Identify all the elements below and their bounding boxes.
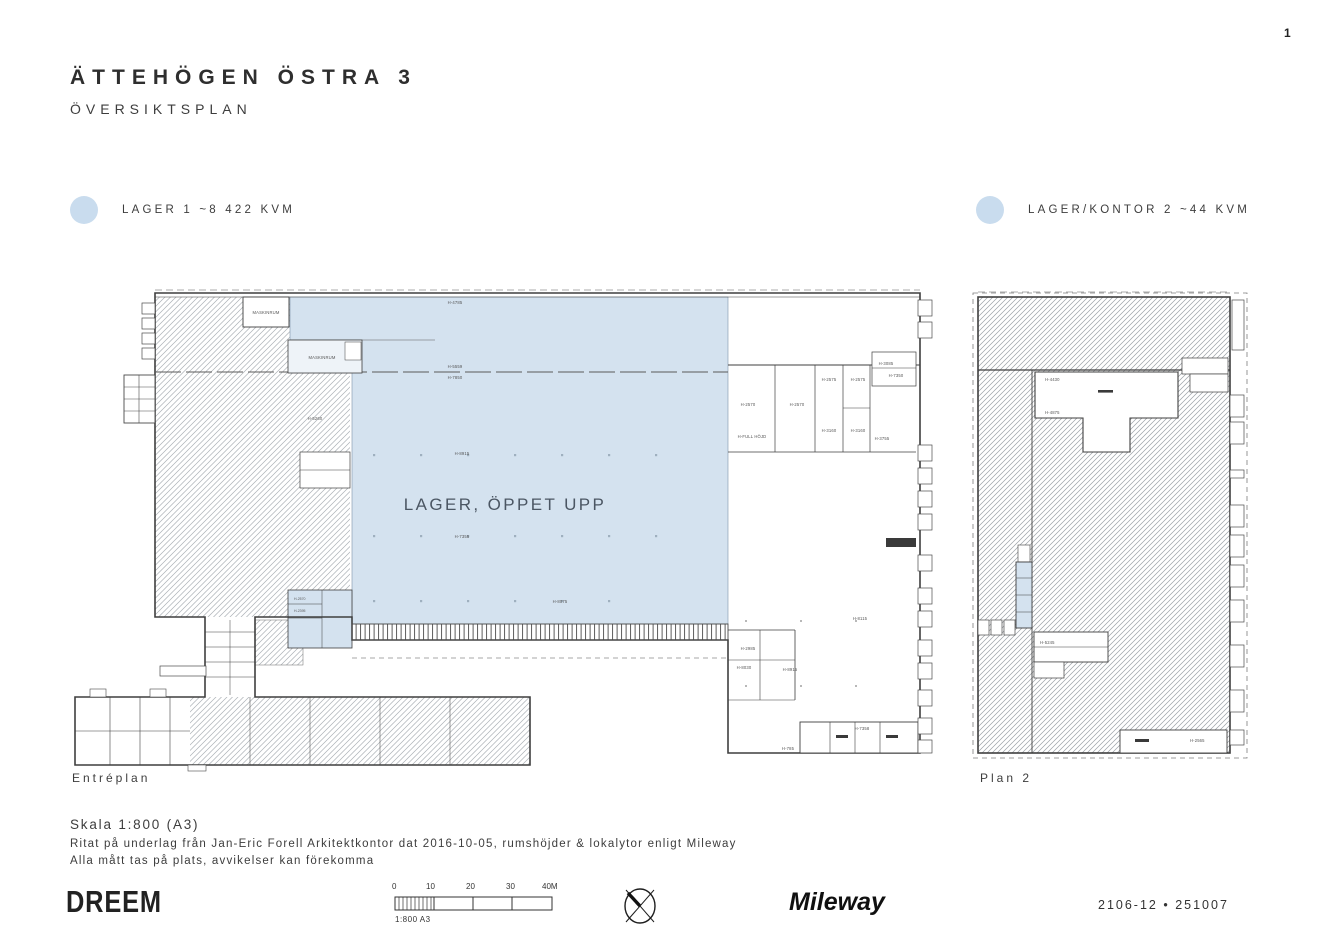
height-label: H-8030	[737, 665, 752, 670]
height-label: H-3160	[851, 428, 866, 433]
mileway-logo: Mileway	[789, 888, 885, 917]
height-label: H-2575	[851, 377, 866, 382]
height-label: H-2575	[822, 377, 837, 382]
height-label: H-7358	[855, 726, 870, 731]
scale-note: Skala 1:800 (A3)	[70, 817, 199, 832]
scalebar-tick: 20	[466, 882, 475, 891]
document-number: 2106-12 • 251007	[1098, 898, 1229, 912]
height-label: H-4785	[448, 300, 463, 305]
room-label: H-2395	[294, 609, 306, 613]
drawing-note-2: Alla mått tas på plats, avvikelser kan f…	[70, 855, 374, 867]
drawing-note-1: Ritat på underlag från Jan-Eric Forell A…	[70, 838, 737, 850]
height-label: H-8075	[553, 599, 568, 604]
height-label: H-2985	[741, 646, 756, 651]
height-label: H-FULL HÖJD	[738, 434, 767, 439]
height-label: H-5559	[448, 364, 463, 369]
height-label: H-3755	[875, 436, 890, 441]
height-label: H-2570	[741, 402, 756, 407]
scalebar-tick: 30	[506, 882, 515, 891]
floorplan-drawing: H-2570 H-2395 MASKINRUM MASKINRUM H-5260	[0, 0, 1330, 940]
compass-icon	[625, 889, 655, 923]
open-area-label: LAGER, ÖPPET UPP	[404, 495, 606, 514]
entreplan-drawing: H-2570 H-2395 MASKINRUM MASKINRUM H-5260	[75, 290, 932, 771]
dreem-logo: DREEM	[66, 884, 162, 920]
height-label: H-8915	[455, 451, 470, 456]
scale-bar: 0 10 20 30 40M 1:800 A3	[392, 882, 558, 924]
room-label-maskinrum1: MASKINRUM	[253, 310, 280, 315]
entreplan-caption: Entréplan	[72, 771, 150, 785]
height-label: H-5245	[1040, 640, 1055, 645]
loading-docks	[1230, 395, 1244, 745]
page: 1 ÄTTEHÖGEN ÖSTRA 3 ÖVERSIKTSPLAN LAGER …	[0, 0, 1330, 940]
height-label: H-7350	[889, 373, 904, 378]
height-label: H-4430	[1045, 377, 1060, 382]
scalebar-caption: 1:800 A3	[395, 915, 431, 924]
height-label: H-3160	[822, 428, 837, 433]
scalebar-tick: 40M	[542, 882, 558, 891]
height-label: H-4875	[1045, 410, 1060, 415]
height-label: H-2565	[1190, 738, 1205, 743]
room-label: H-2570	[294, 597, 306, 601]
height-label: H-7850	[448, 375, 463, 380]
room-label-maskinrum2: MASKINRUM	[309, 355, 336, 360]
scalebar-tick: 10	[426, 882, 435, 891]
scalebar-tick: 0	[392, 882, 397, 891]
plan2-caption: Plan 2	[980, 771, 1032, 785]
plan2-drawing: H-4430 H-4875	[973, 292, 1247, 758]
height-label: H-785	[782, 746, 795, 751]
height-label: H-7355	[455, 534, 470, 539]
height-label: H-2570	[790, 402, 805, 407]
room-label: H-5260	[308, 416, 323, 421]
height-label: H-8915	[783, 667, 798, 672]
height-label: H-3085	[879, 361, 894, 366]
